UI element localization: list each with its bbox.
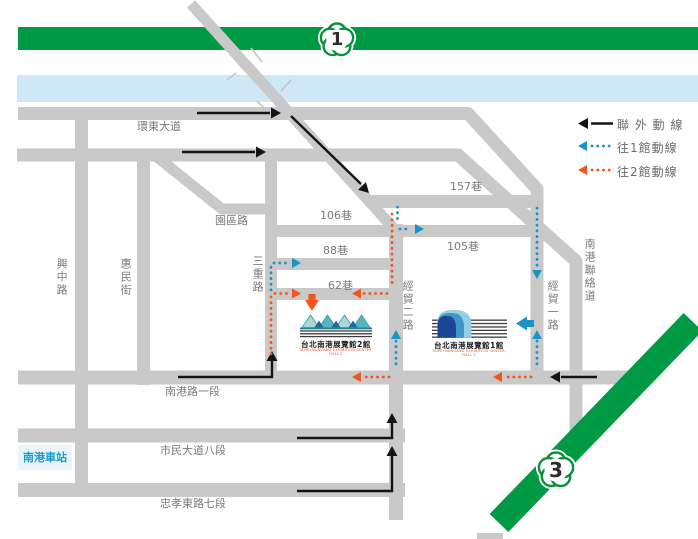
hall1-icon: [432, 310, 507, 338]
road-label-lane157: 157巷: [450, 181, 482, 193]
road-label-sanchong: 三重路: [251, 255, 263, 294]
highway-3-number: 3: [543, 458, 569, 482]
road-label-zhongxiao7: 忠孝東路七段: [160, 498, 226, 510]
highway-1-band: [18, 27, 698, 50]
hall1-name-en: TAIPEI NANGANG EXHIBITION CENTER, HALL 1: [428, 349, 510, 357]
nangang-exhibition-access-map: 環東大道 園區路 157巷 106巷 105巷 88巷 62巷 南港路一段 市民…: [0, 0, 698, 539]
road-label-jingmao2: 經貿二路: [401, 280, 413, 332]
nangang-station-badge: 南港車站: [18, 445, 72, 470]
road-label-lane105: 105巷: [447, 241, 479, 253]
hall2-icon: [300, 315, 372, 337]
legend-hall2-route-label: 往2館動線: [617, 163, 678, 180]
highway-3-band: [499, 322, 693, 523]
road-label-huimin: 惠民街: [119, 258, 131, 297]
legend-outer-route-label: 聯 外 動 線: [617, 116, 683, 133]
road-label-lane106: 106巷: [320, 210, 352, 222]
legend-hall1-route-label: 往1館動線: [617, 139, 678, 156]
hall2-name-en: TAIPEI NANGANG EXHIBITION CENTER, HALL 2: [295, 348, 377, 356]
road-label-yuanqu: 園區路: [215, 215, 248, 227]
road-label-lianluo: 南港聯絡道: [583, 238, 595, 303]
road-label-civic8: 市民大道八段: [160, 445, 226, 457]
road-label-lane62: 62巷: [328, 280, 353, 292]
road-label-huandong: 環東大道: [137, 121, 181, 133]
road-label-jingmao1: 經貿一路: [546, 280, 558, 332]
road-label-xingzhong: 興中路: [55, 258, 67, 297]
highway-1-number: 1: [325, 29, 349, 50]
road-label-lane88: 88巷: [323, 245, 348, 257]
river: [17, 75, 698, 102]
road-label-nangang1: 南港路一段: [165, 386, 220, 398]
